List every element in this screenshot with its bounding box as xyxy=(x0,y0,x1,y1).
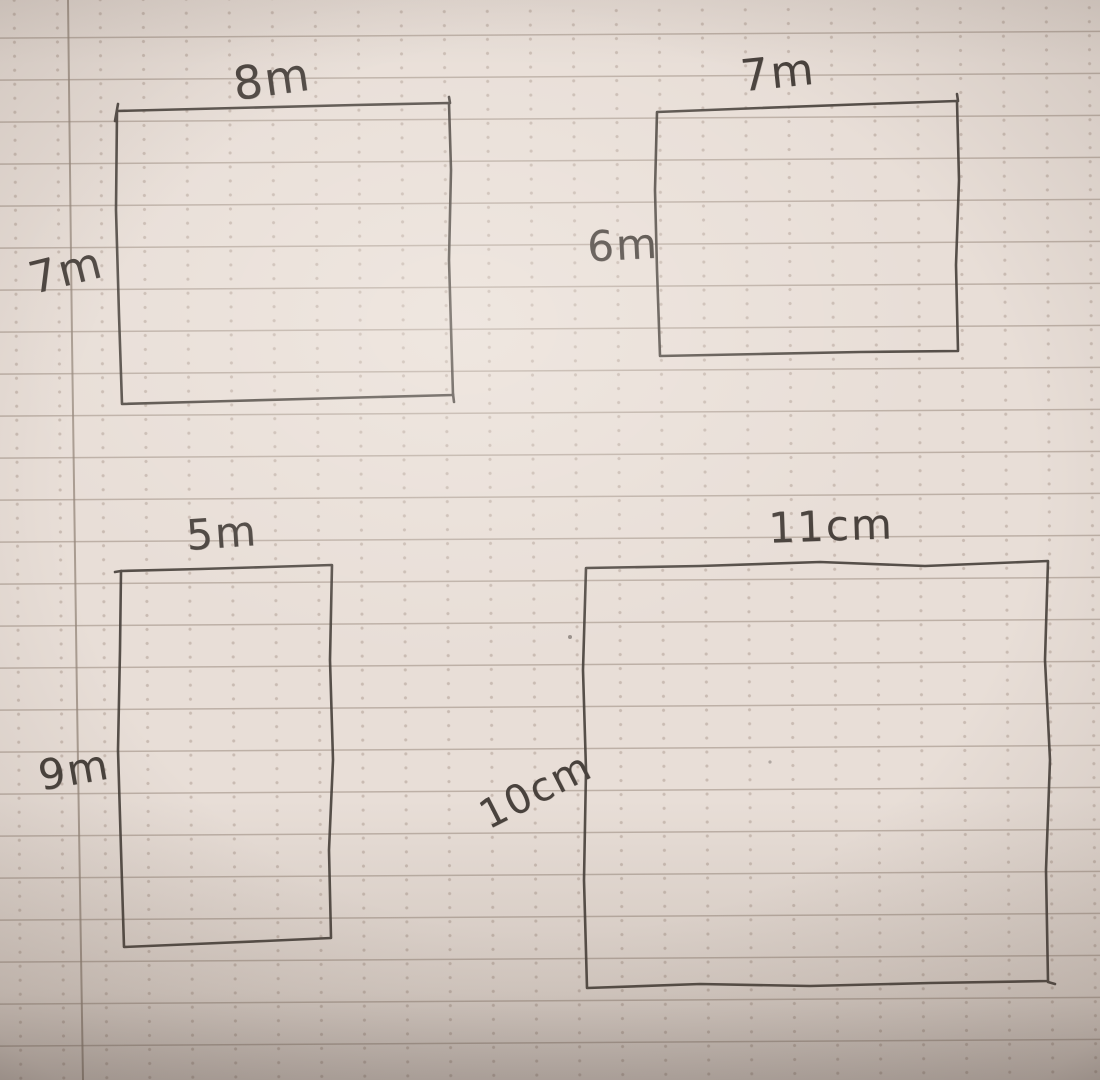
margin-line xyxy=(68,0,83,1080)
sketch-layer xyxy=(0,0,1100,1080)
dimension-label-top-right-height: 6m xyxy=(586,219,660,272)
pen-overshoot-bottom-right-rect xyxy=(1048,982,1055,984)
rectangle-outline-bottom-left xyxy=(118,565,333,947)
pen-overshoot-top-left-rect-bottom xyxy=(453,394,454,402)
rectangle-outline-top-left xyxy=(116,103,453,404)
rectangle-outline-bottom-right xyxy=(583,561,1050,988)
pen-overshoot-bottom-left-rect xyxy=(115,571,121,572)
rectangle-outline-top-right xyxy=(655,101,959,356)
pen-overshoot-top-left-rect-corner xyxy=(449,97,450,103)
dimension-label-bottom-right-width: 11cm xyxy=(767,499,894,552)
pencil-speck xyxy=(768,760,771,763)
dimension-label-bottom-left-width: 5m xyxy=(185,506,260,560)
notebook-page: 8m 7m 7m 6m 5m 9m 11cm 10cm xyxy=(0,0,1100,1080)
pencil-speck xyxy=(568,635,572,639)
pen-overshoot-top-right-rect xyxy=(957,94,958,101)
dimension-label-top-right-width: 7m xyxy=(738,44,818,103)
dimension-label-top-left-width: 8m xyxy=(230,47,315,111)
